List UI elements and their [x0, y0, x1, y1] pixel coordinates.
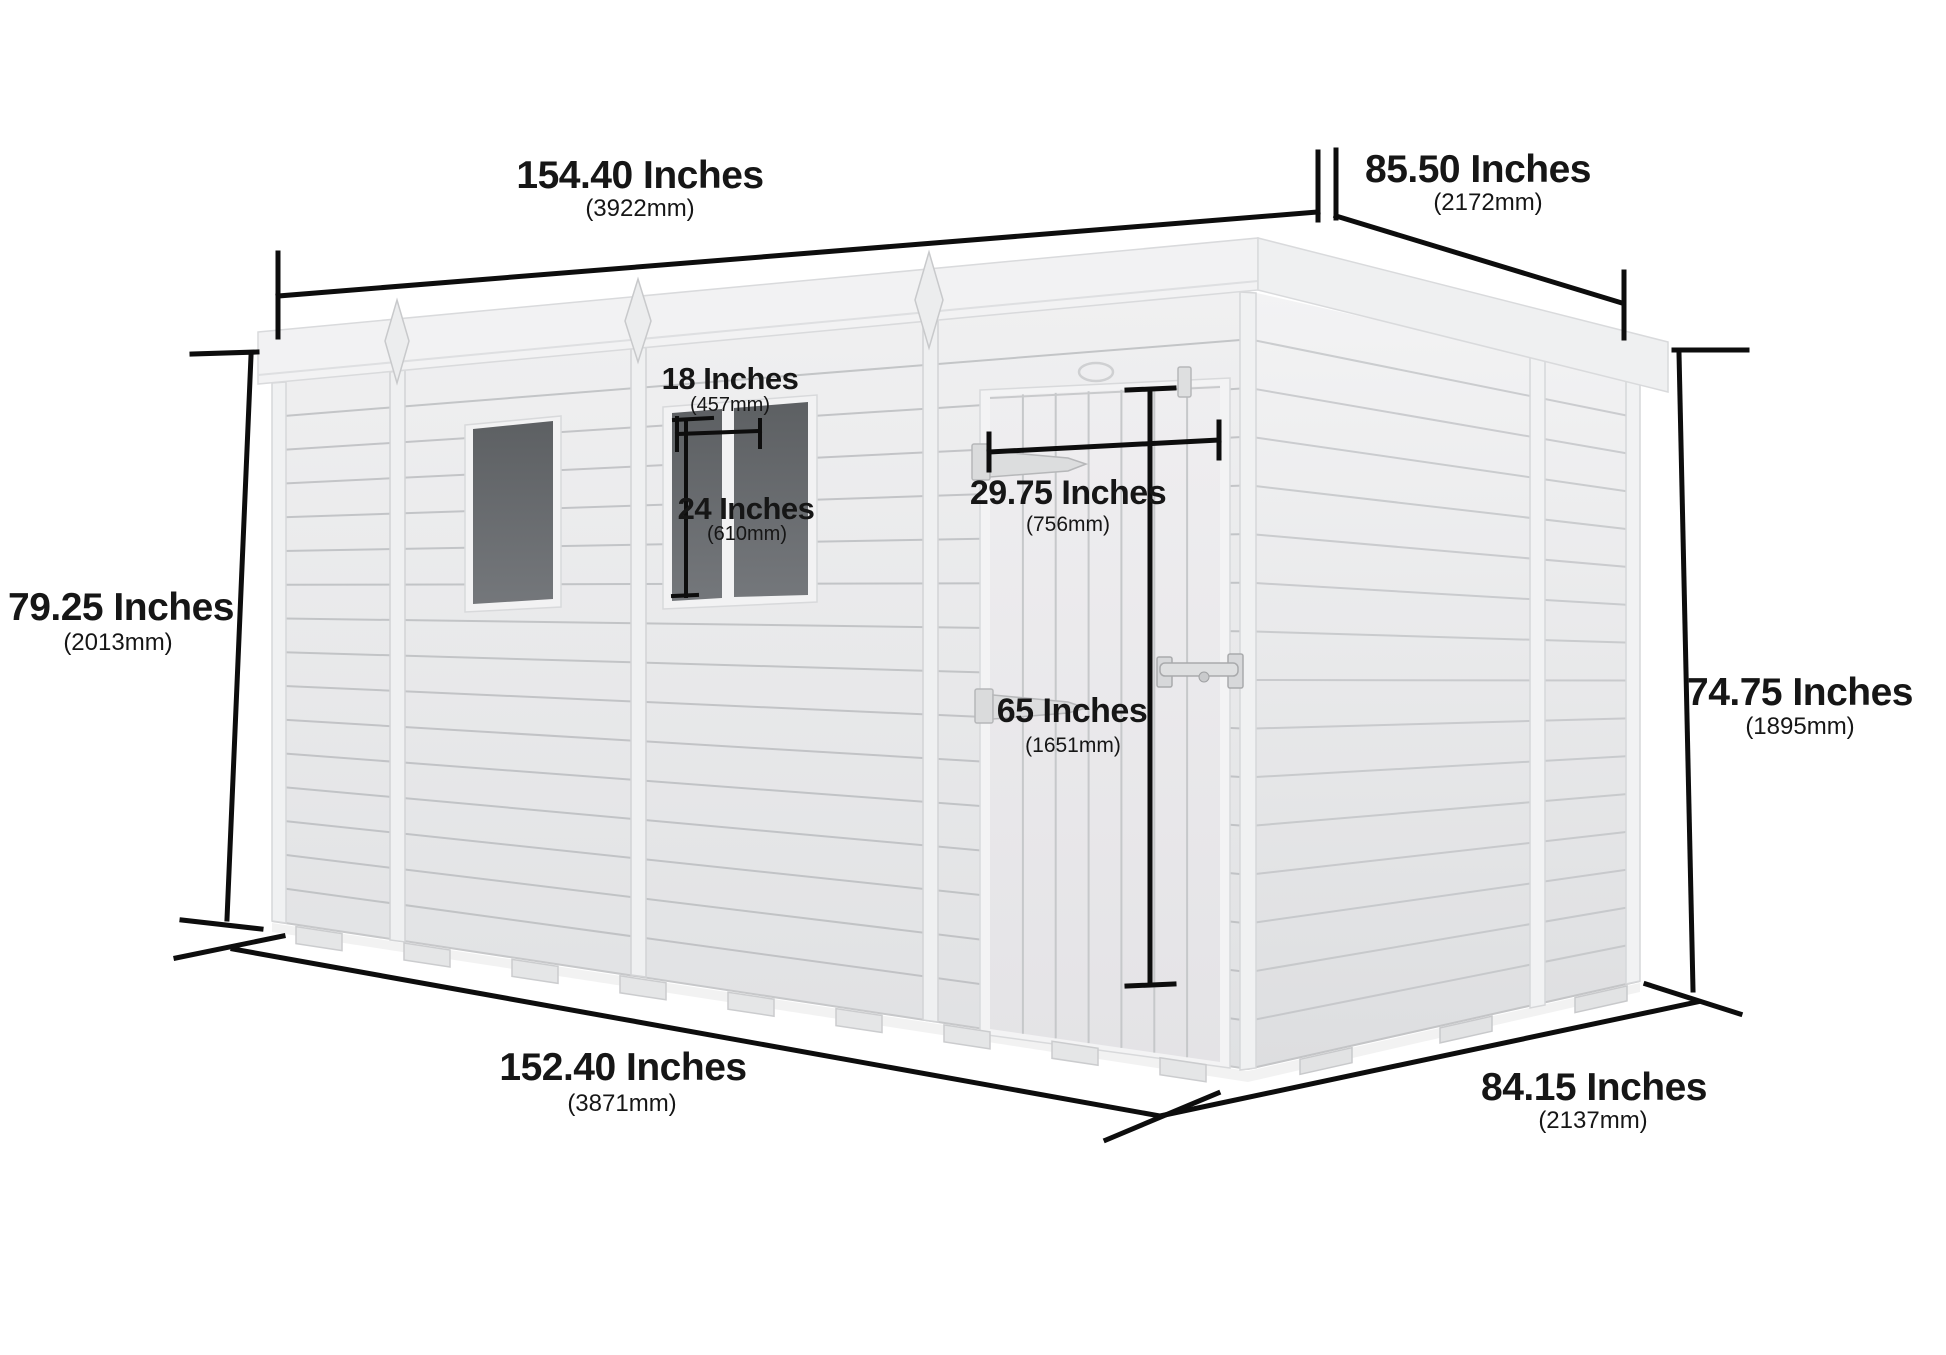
corner-trim-back	[1626, 377, 1640, 984]
label-door-width: 29.75 Inches	[970, 474, 1166, 512]
label-front-height-mm: (2013mm)	[63, 629, 172, 656]
dim-door-height-tick-bottom	[1127, 984, 1174, 986]
label-roof-depth-mm: (2172mm)	[1433, 189, 1542, 216]
label-rear-height: 74.75 Inches	[1687, 671, 1913, 714]
label-base-depth: 84.15 Inches	[1481, 1066, 1707, 1109]
dim-front-height-line	[227, 356, 251, 919]
label-front-height: 79.25 Inches	[8, 586, 234, 629]
label-roof-length: 154.40 Inches	[516, 154, 763, 197]
shed-diagram-canvas: 154.40 Inches (3922mm) 85.50 Inches (217…	[0, 0, 1946, 1355]
label-window-width: 18 Inches	[662, 361, 799, 396]
dim-window-height-tick-top	[674, 418, 712, 420]
trim-post-1	[390, 370, 405, 942]
label-window-height: 24 Inches	[678, 491, 815, 526]
label-door-height: 65 Inches	[997, 692, 1147, 730]
trim-post-3	[923, 320, 938, 1022]
dim-front-height-tick-bottom	[182, 920, 261, 929]
window-1-pane	[473, 421, 553, 604]
trim-post-2	[631, 347, 646, 977]
label-door-height-mm: (1651mm)	[1025, 734, 1121, 757]
trim-post-side	[1530, 355, 1545, 1008]
dim-door-height-tick-top	[1127, 388, 1174, 390]
label-rear-height-mm: (1895mm)	[1745, 713, 1854, 740]
corner-trim-left	[272, 382, 286, 923]
dim-front-height-tick-top	[192, 352, 257, 354]
label-window-height-mm: (610mm)	[707, 523, 787, 545]
label-window-width-mm: (457mm)	[690, 394, 770, 416]
label-door-width-mm: (756mm)	[1026, 513, 1110, 536]
door-latch-keep-top	[1178, 367, 1191, 397]
shed-dimension-page: 154.40 Inches (3922mm) 85.50 Inches (217…	[0, 0, 1946, 1355]
label-roof-length-mm: (3922mm)	[585, 195, 694, 222]
dim-window-height-tick-bottom	[673, 595, 697, 596]
label-base-depth-mm: (2137mm)	[1538, 1107, 1647, 1134]
label-base-length: 152.40 Inches	[499, 1046, 746, 1089]
label-roof-depth: 85.50 Inches	[1365, 148, 1591, 191]
shed	[258, 238, 1668, 1082]
cladding-line	[1251, 680, 1637, 681]
label-base-length-mm: (3871mm)	[567, 1090, 676, 1117]
